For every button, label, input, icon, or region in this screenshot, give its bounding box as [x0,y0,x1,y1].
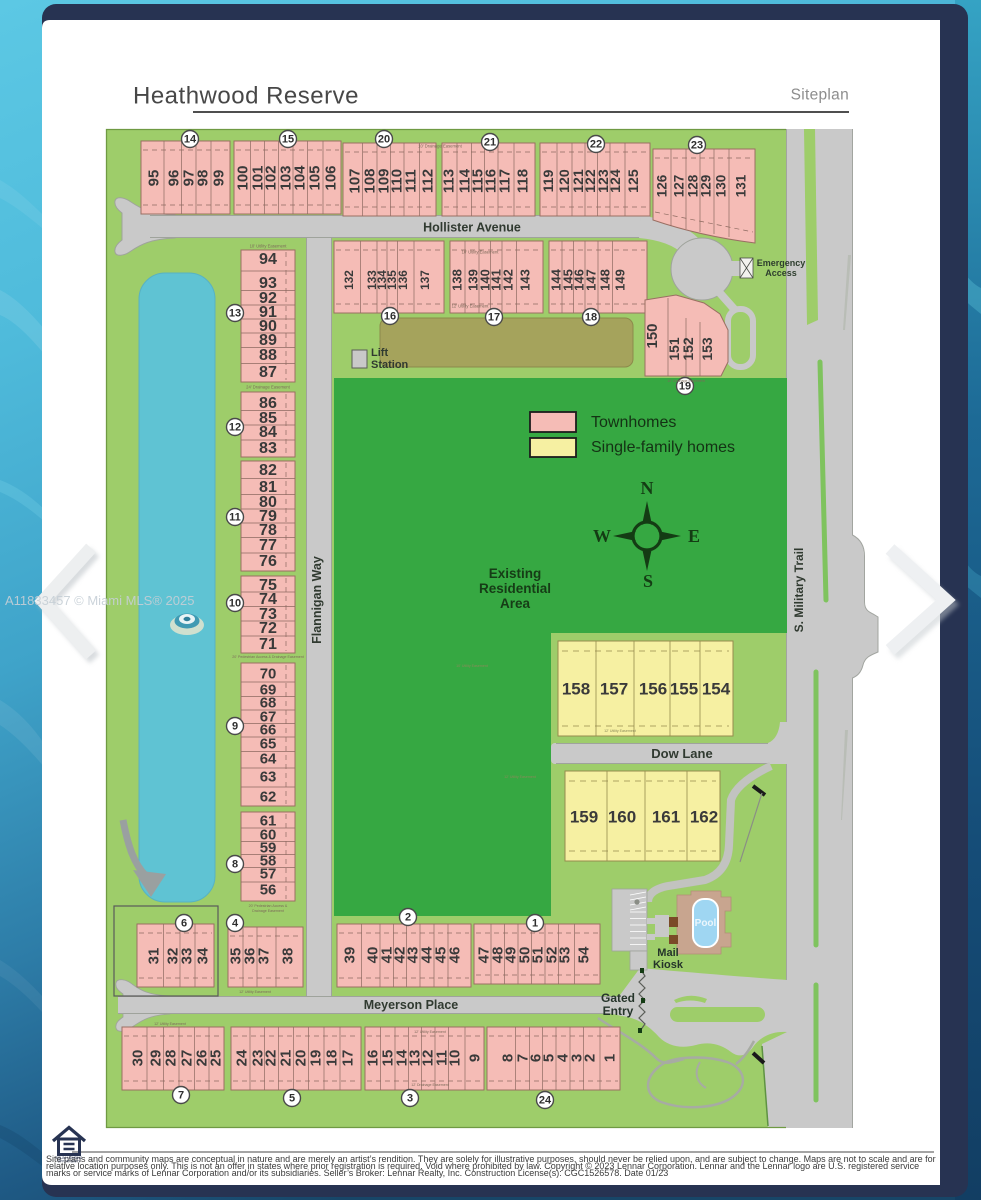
svg-text:12' Utility Easement: 12' Utility Easement [239,990,271,994]
svg-text:Single-family homes: Single-family homes [591,439,735,456]
svg-text:marks or service marks of Lenn: marks or service marks of Lennar Corpora… [46,1168,668,1178]
svg-text:3: 3 [407,1093,413,1105]
svg-text:38: 38 [280,948,297,965]
svg-text:24' Drainage Easement: 24' Drainage Easement [246,385,290,390]
svg-text:10' Drainage Easement: 10' Drainage Easement [418,144,462,149]
svg-text:159: 159 [570,808,598,827]
svg-text:12' Utility Easement: 12' Utility Easement [414,1030,446,1034]
svg-text:10' Utility Easement: 10' Utility Easement [456,664,488,668]
svg-text:118: 118 [515,169,532,193]
svg-text:31: 31 [146,948,163,965]
svg-text:162: 162 [690,808,718,827]
svg-text:94: 94 [259,250,277,268]
svg-text:158: 158 [562,680,590,699]
svg-text:64: 64 [260,751,277,768]
svg-text:147: 147 [584,269,599,291]
svg-text:15: 15 [282,134,294,146]
svg-text:Heathwood Reserve: Heathwood Reserve [133,83,359,110]
svg-text:87: 87 [259,363,277,381]
svg-text:W: W [593,526,611,546]
svg-text:54: 54 [576,946,593,963]
svg-text:E: E [688,526,700,546]
svg-text:Meyerson Place: Meyerson Place [364,998,459,1012]
svg-text:149: 149 [613,269,628,291]
svg-text:148: 148 [598,269,613,291]
svg-text:9: 9 [467,1054,484,1062]
svg-text:125: 125 [626,169,642,193]
svg-text:9: 9 [232,721,238,733]
svg-text:S: S [643,571,653,591]
svg-text:23: 23 [691,140,703,152]
svg-text:30: 30 [130,1050,147,1067]
svg-text:12: 12 [229,422,241,434]
svg-text:12' Utility Easement: 12' Utility Easement [504,775,536,779]
svg-text:153: 153 [699,337,715,361]
svg-text:8: 8 [232,859,238,871]
svg-text:83: 83 [259,439,277,457]
svg-text:16: 16 [384,311,396,323]
svg-text:Hollister Avenue: Hollister Avenue [423,221,521,235]
svg-text:Gated: Gated [601,991,635,1005]
svg-text:138: 138 [450,269,465,291]
svg-text:56: 56 [260,882,277,899]
svg-text:71: 71 [259,635,277,653]
svg-text:Access: Access [765,268,797,278]
svg-text:Residential: Residential [479,581,551,596]
svg-text:1: 1 [602,1054,619,1062]
svg-text:117: 117 [497,169,514,193]
svg-text:4: 4 [232,918,239,930]
svg-text:39: 39 [342,947,359,964]
svg-text:70: 70 [260,666,277,683]
svg-text:Existing: Existing [489,566,542,581]
svg-text:14: 14 [184,134,197,146]
svg-text:Drainage Easement: Drainage Easement [252,909,284,913]
svg-text:10' Utility Easement: 10' Utility Easement [250,244,288,249]
svg-text:7: 7 [178,1090,184,1102]
svg-text:20: 20 [378,134,390,146]
svg-text:105: 105 [307,165,324,190]
svg-text:Pool: Pool [695,918,717,929]
svg-text:21: 21 [484,137,496,149]
svg-text:12' Utility Easement: 12' Utility Easement [154,1022,186,1026]
svg-text:160: 160 [608,808,636,827]
svg-text:150: 150 [644,323,661,348]
svg-text:63: 63 [260,769,277,786]
svg-text:98: 98 [195,170,212,187]
svg-text:37: 37 [256,948,273,965]
svg-text:106: 106 [323,165,340,190]
svg-text:6: 6 [181,918,187,930]
svg-text:Townhomes: Townhomes [591,414,676,431]
svg-text:10: 10 [447,1050,464,1067]
svg-text:10: 10 [229,598,241,610]
svg-text:17: 17 [488,312,500,324]
svg-text:Area: Area [500,596,531,611]
svg-text:2: 2 [582,1054,599,1062]
svg-text:25: 25 [208,1050,225,1067]
svg-text:Flannigan Way: Flannigan Way [310,556,324,644]
svg-text:137: 137 [418,270,432,290]
svg-text:28: 28 [163,1050,180,1067]
svg-text:17: 17 [340,1050,357,1067]
svg-text:126: 126 [655,174,670,197]
svg-text:Dow Lane: Dow Lane [651,746,712,761]
svg-text:20' Pedestrian Access &: 20' Pedestrian Access & [249,904,288,908]
svg-text:A11833457 © Miami MLS® 2025: A11833457 © Miami MLS® 2025 [5,593,194,608]
svg-text:24: 24 [539,1095,552,1107]
svg-text:99: 99 [211,170,228,187]
svg-text:76: 76 [259,552,277,570]
svg-text:Station: Station [371,359,409,371]
svg-text:111: 111 [403,169,420,192]
svg-text:152: 152 [680,337,696,361]
svg-text:OPPORTUNITY: OPPORTUNITY [58,1160,82,1164]
svg-text:Lift: Lift [371,347,388,359]
svg-text:62: 62 [260,789,277,806]
svg-text:Mail: Mail [657,947,678,959]
svg-text:130: 130 [714,175,729,198]
svg-text:Siteplan: Siteplan [791,87,849,104]
svg-text:127: 127 [672,175,687,198]
svg-text:34: 34 [195,947,212,964]
svg-text:10' Drainage Easement: 10' Drainage Easement [667,379,704,383]
svg-text:12' Utility Easement: 12' Utility Easement [604,729,636,733]
svg-text:124: 124 [608,169,624,193]
svg-text:143: 143 [518,269,533,291]
svg-text:119: 119 [541,169,557,192]
svg-text:154: 154 [702,680,731,699]
svg-text:112: 112 [420,169,437,193]
svg-text:12' Utility Easement: 12' Utility Easement [452,304,490,309]
svg-text:13: 13 [229,308,241,320]
svg-text:24: 24 [234,1049,251,1066]
svg-text:Emergency: Emergency [757,258,806,268]
svg-text:12' Drainage Easement: 12' Drainage Easement [411,1083,448,1087]
svg-text:161: 161 [652,808,680,827]
svg-text:129: 129 [699,175,714,198]
svg-text:22: 22 [590,139,602,151]
svg-text:142: 142 [501,269,516,291]
svg-text:1: 1 [532,918,538,930]
svg-text:136: 136 [396,270,410,290]
svg-text:95: 95 [146,170,163,187]
svg-text:5: 5 [289,1093,295,1105]
svg-text:Kiosk: Kiosk [653,959,684,971]
svg-text:10' Utility Easement: 10' Utility Easement [462,250,500,255]
svg-text:18: 18 [585,312,597,324]
svg-text:2: 2 [405,912,411,924]
svg-text:N: N [641,478,654,498]
svg-text:Entry: Entry [603,1004,634,1018]
svg-text:132: 132 [342,270,356,290]
svg-text:131: 131 [734,174,749,197]
svg-text:53: 53 [557,947,574,964]
svg-text:18: 18 [324,1050,341,1067]
svg-text:113: 113 [441,169,458,193]
svg-text:20' Pedestrian Access & Draina: 20' Pedestrian Access & Drainage Easemen… [232,655,303,659]
svg-text:155: 155 [670,680,698,699]
svg-text:S. Military Trail: S. Military Trail [792,548,806,633]
svg-text:46: 46 [447,947,464,964]
svg-text:33: 33 [179,948,196,965]
svg-text:156: 156 [639,680,667,699]
svg-text:19: 19 [308,1050,325,1067]
svg-text:11: 11 [229,512,241,524]
svg-text:157: 157 [600,680,628,699]
svg-text:82: 82 [259,461,277,479]
svg-text:88: 88 [259,346,277,364]
svg-text:57: 57 [260,866,277,883]
